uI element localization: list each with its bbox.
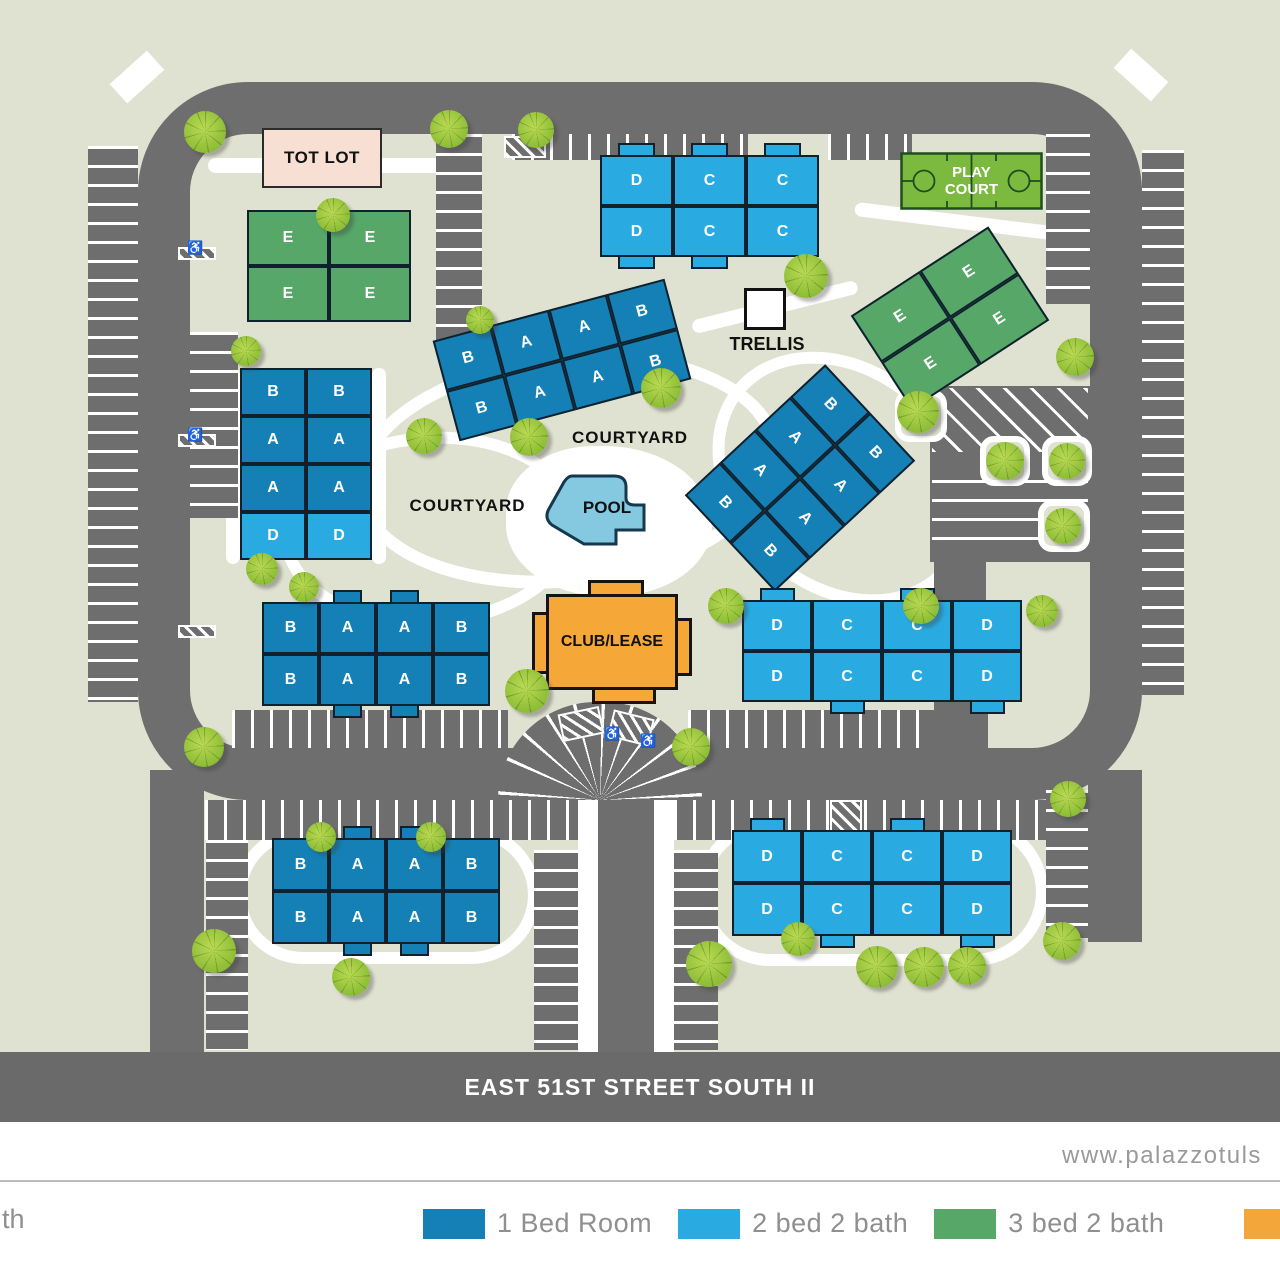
street-east-51st: EAST 51ST STREET SOUTH II: [0, 1052, 1280, 1122]
tree-icon: [986, 442, 1024, 480]
parking-stripes: [1046, 134, 1090, 304]
unit-label: B: [433, 654, 490, 706]
building-tab: [820, 934, 855, 948]
tree-icon: [856, 946, 898, 988]
unit-label: B: [240, 368, 306, 416]
pool-label: POOL: [552, 498, 662, 518]
legend-item-label: 2 bed 2 bath: [752, 1208, 908, 1239]
legend-item: 2 bed 2 bath: [678, 1208, 908, 1239]
building-tab: [960, 934, 995, 948]
legend-color-swatch: [423, 1209, 485, 1239]
unit-label: B: [443, 838, 500, 891]
unit-label: C: [872, 883, 942, 936]
building-tab: [390, 704, 419, 718]
unit-label: E: [329, 266, 411, 322]
club-lease-building: CLUB/LEASE: [546, 594, 678, 690]
handicap-icon: ♿: [604, 727, 620, 740]
building-dcc-north: DCCDCC: [600, 155, 819, 257]
tree-icon: [903, 588, 939, 624]
legend-item: 1 Bed Room: [423, 1208, 652, 1239]
play-court-label: PLAY COURT: [900, 152, 1043, 210]
building-dccd-south: DCCDDCCD: [732, 830, 1012, 936]
tree-icon: [1026, 595, 1058, 627]
unit-label: C: [812, 600, 882, 651]
handicap-icon: ♿: [187, 428, 203, 441]
unit-label: C: [746, 206, 819, 257]
tree-icon: [1056, 338, 1094, 376]
tree-icon: [192, 929, 236, 973]
unit-label: B: [262, 654, 319, 706]
unit-label: D: [942, 830, 1012, 883]
unit-label: B: [306, 368, 372, 416]
unit-label: A: [240, 464, 306, 512]
tree-icon: [897, 391, 939, 433]
building-tab: [343, 942, 372, 956]
unit-label: B: [443, 891, 500, 944]
tree-icon: [416, 822, 446, 852]
unit-label: D: [732, 830, 802, 883]
handicap-icon: ♿: [640, 734, 656, 747]
hatched-zone: [178, 625, 216, 638]
unit-label: A: [306, 416, 372, 464]
tree-icon: [781, 922, 815, 956]
unit-label: B: [433, 602, 490, 654]
tree-icon: [641, 368, 681, 408]
pool: [538, 468, 670, 568]
parking-stripes: [534, 850, 578, 1050]
legend-color-swatch: [934, 1209, 996, 1239]
tree-icon: [246, 553, 278, 585]
unit-label: A: [319, 602, 376, 654]
legend-cutoff-text: th: [2, 1204, 25, 1235]
unit-label: C: [746, 155, 819, 206]
parking-stripes: [232, 710, 508, 748]
building-dccd-east: DCCDDCCD: [742, 600, 1022, 702]
tree-icon: [1043, 922, 1081, 960]
tree-icon: [505, 669, 549, 713]
entrance-marker-northeast: [1114, 49, 1169, 102]
entrance-marker-northwest: [110, 51, 165, 104]
unit-label: D: [742, 600, 812, 651]
unit-label: A: [329, 838, 386, 891]
trellis-label: TRELLIS: [692, 334, 842, 355]
building-tab: [691, 255, 728, 269]
tree-icon: [518, 112, 554, 148]
unit-label: A: [376, 654, 433, 706]
site-map: ♿ ♿ ♿ ♿ TOT LOT PLAY COURT TRELLIS COURT…: [0, 0, 1280, 1052]
road-center-extension: [598, 790, 654, 1055]
parking-stripes: [205, 800, 578, 840]
unit-label: D: [600, 155, 673, 206]
building-tab: [830, 700, 865, 714]
courtyard-center-label: COURTYARD: [540, 428, 720, 448]
unit-label: A: [240, 416, 306, 464]
unit-label: D: [942, 883, 1012, 936]
unit-label: A: [386, 891, 443, 944]
handicap-icon: ♿: [187, 241, 203, 254]
legend-color-swatch: [1244, 1209, 1280, 1239]
building-tab: [618, 255, 655, 269]
unit-label: C: [812, 651, 882, 702]
unit-label: D: [240, 512, 306, 560]
building-stack-west: BBAAAADD: [240, 368, 372, 560]
road-west-extension: [150, 770, 204, 1055]
tree-icon: [430, 110, 468, 148]
unit-label: A: [329, 891, 386, 944]
site-map-page: { "street": { "label": "EAST 51ST STREET…: [0, 0, 1280, 1280]
legend-item-label: 1 Bed Room: [497, 1208, 652, 1239]
website-url: www.palazzotuls: [1062, 1142, 1262, 1170]
tree-icon: [1045, 508, 1081, 544]
tree-icon: [332, 958, 370, 996]
parking-stripes: [190, 332, 238, 518]
tree-icon: [1049, 443, 1085, 479]
tree-icon: [1050, 781, 1086, 817]
legend-item: [1244, 1209, 1280, 1239]
unit-label: C: [802, 883, 872, 936]
legend-color-swatch: [678, 1209, 740, 1239]
unit-label: A: [319, 654, 376, 706]
tree-icon: [784, 254, 828, 298]
tree-icon: [904, 947, 944, 987]
unit-label: C: [882, 651, 952, 702]
unit-label: E: [247, 266, 329, 322]
tree-icon: [948, 947, 986, 985]
unit-label: C: [673, 155, 746, 206]
parking-stripes: [88, 146, 138, 702]
unit-label: C: [872, 830, 942, 883]
unit-label: D: [306, 512, 372, 560]
courtyard-west-label: COURTYARD: [380, 496, 555, 516]
tree-icon: [316, 198, 350, 232]
building-baab-west: BAABBAAB: [262, 602, 490, 706]
tree-icon: [686, 941, 732, 987]
unit-label: D: [742, 651, 812, 702]
unit-label: A: [376, 602, 433, 654]
building-tab: [333, 704, 362, 718]
building-tab: [970, 700, 1005, 714]
tree-icon: [708, 588, 744, 624]
unit-label: B: [272, 891, 329, 944]
tree-icon: [466, 306, 494, 334]
unit-label: D: [952, 600, 1022, 651]
unit-label: D: [952, 651, 1022, 702]
unit-label: B: [262, 602, 319, 654]
unit-label: C: [802, 830, 872, 883]
building-baab-south: BAABBAAB: [272, 838, 500, 944]
tree-icon: [184, 727, 224, 767]
legend-item: 3 bed 2 bath: [934, 1208, 1164, 1239]
parking-stripes: [1142, 150, 1184, 695]
trellis: [744, 288, 786, 330]
tree-icon: [231, 336, 261, 366]
tree-icon: [184, 111, 226, 153]
road-east-extension: [1088, 770, 1142, 942]
building-tab: [400, 942, 429, 956]
street-label: EAST 51ST STREET SOUTH II: [465, 1074, 816, 1101]
tree-icon: [306, 822, 336, 852]
unit-label: D: [600, 206, 673, 257]
tree-icon: [672, 728, 710, 766]
legend: 1 Bed Room2 bed 2 bath3 bed 2 bath: [423, 1208, 1280, 1239]
unit-label: A: [306, 464, 372, 512]
tree-icon: [406, 418, 442, 454]
tree-icon: [289, 572, 319, 602]
unit-label: C: [673, 206, 746, 257]
legend-item-label: 3 bed 2 bath: [1008, 1208, 1164, 1239]
footer-divider: [0, 1180, 1280, 1182]
tot-lot: TOT LOT: [262, 128, 382, 188]
